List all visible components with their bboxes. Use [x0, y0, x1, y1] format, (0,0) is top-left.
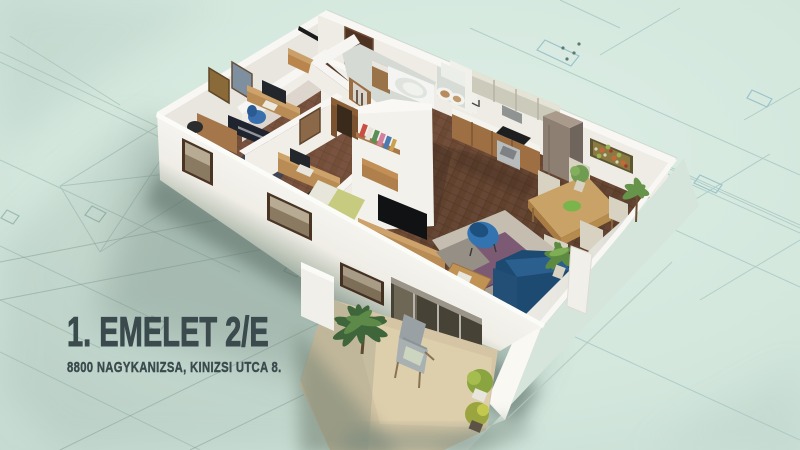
svg-text:8800 NAGYKANIZSA, KINIZSI UTCA: 8800 NAGYKANIZSA, KINIZSI UTCA 8. — [67, 358, 282, 375]
svg-text:1. EMELET 2/E: 1. EMELET 2/E — [67, 309, 269, 355]
